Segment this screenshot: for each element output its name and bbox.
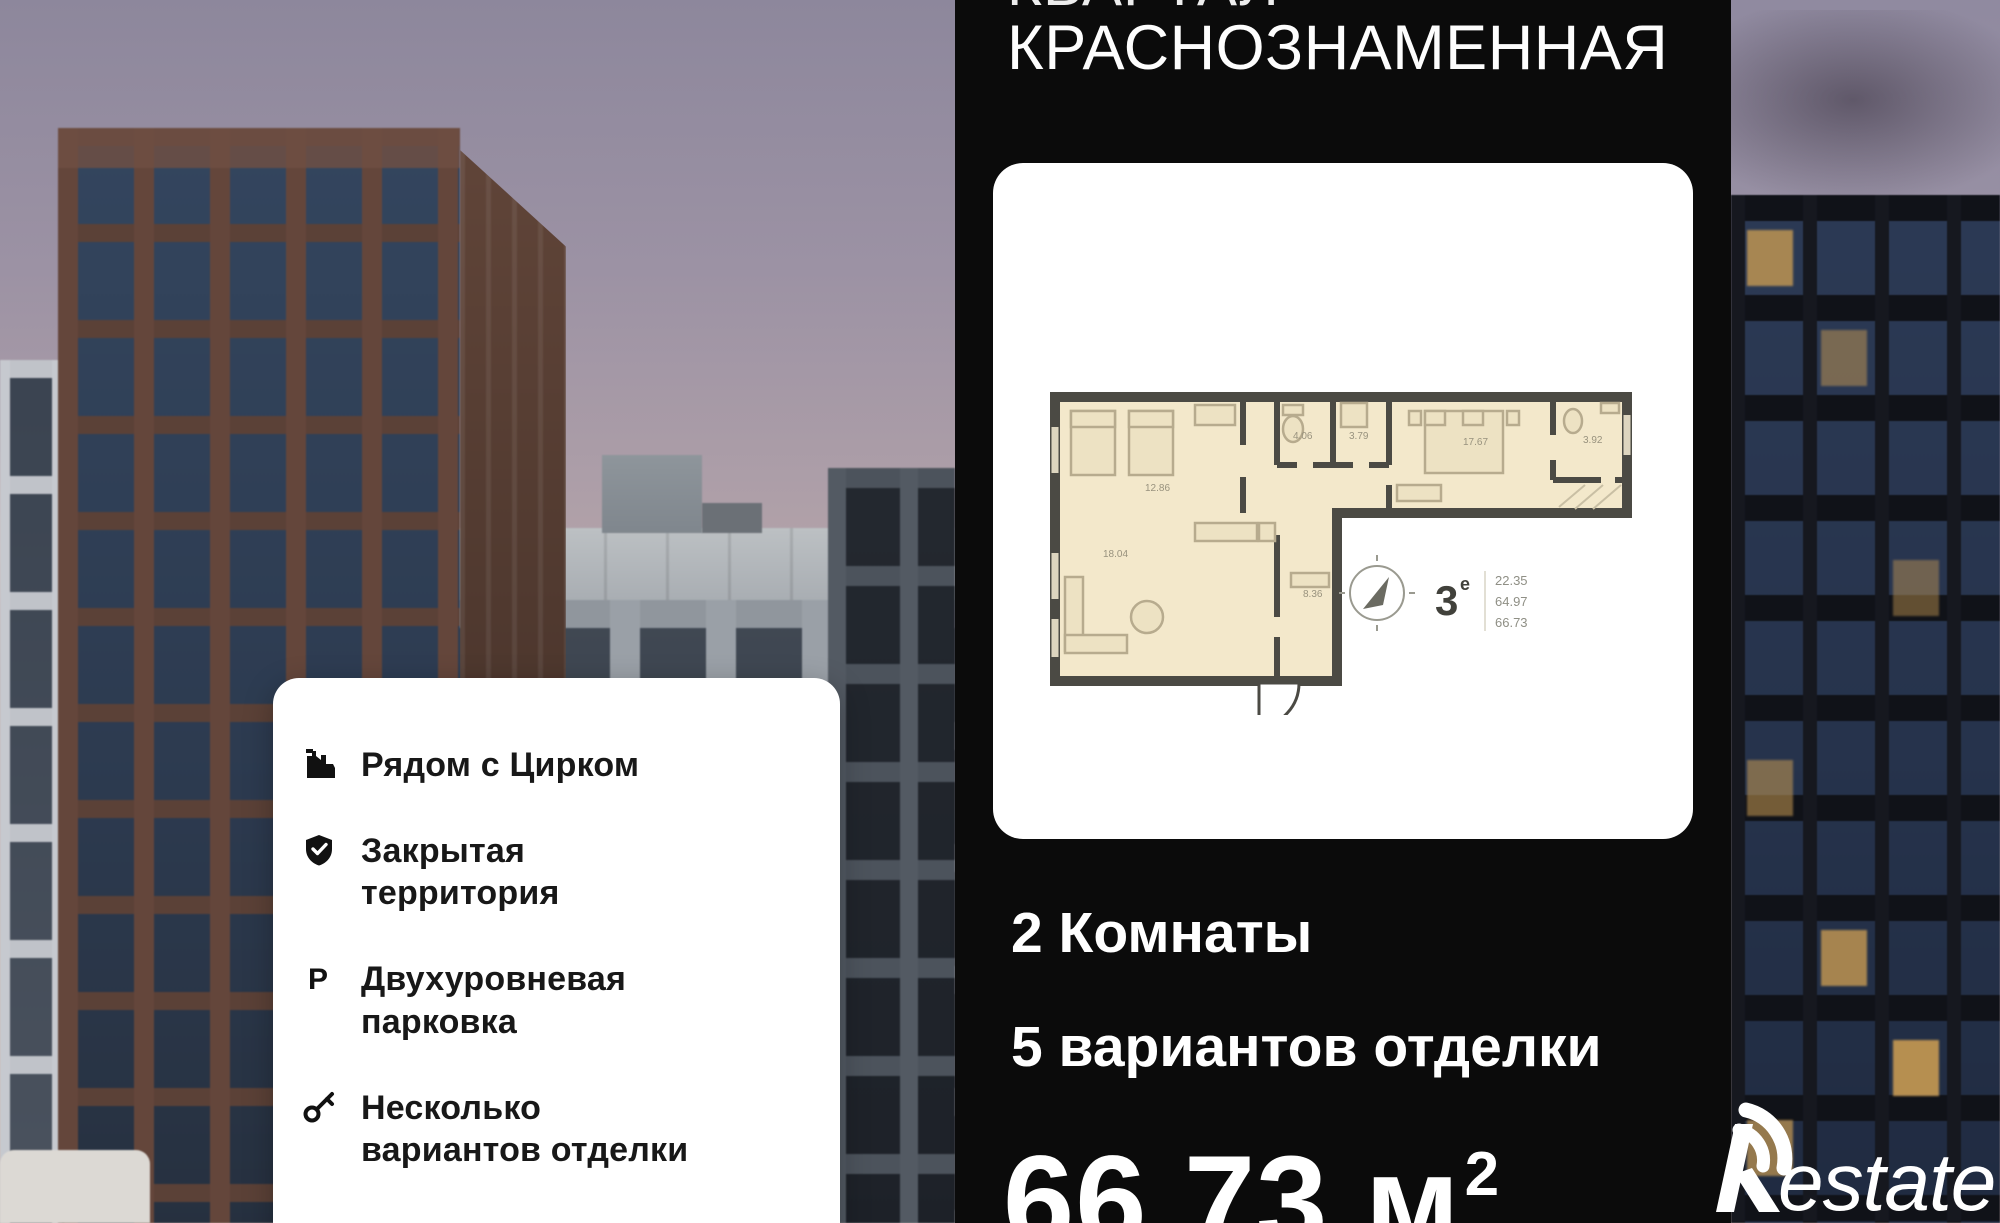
lit-window [1893, 1040, 1939, 1096]
floorplan-drawing: 3 е 22.35 64.97 66.73 12.86 4.06 3.79 17… [1045, 385, 1645, 715]
feature-item-parking: P Двухуровневая парковка [301, 958, 810, 1042]
feature-label: Двухуровневая парковка [361, 958, 691, 1042]
building-low-white [0, 1150, 150, 1223]
rooftop-box [602, 455, 702, 533]
lit-window [1747, 760, 1793, 816]
svg-text:3.79: 3.79 [1349, 431, 1369, 442]
svg-text:12.86: 12.86 [1145, 483, 1170, 494]
restate-logo: estate [1690, 1092, 2000, 1223]
area-value: 66.73 м2 [1003, 1128, 1496, 1223]
feature-label: Несколько вариантов отделки [361, 1087, 691, 1171]
real-estate-ad: Рядом с Цирком Закрытая территория P Дву… [0, 0, 2000, 1223]
restate-logo-graphic: estate [1690, 1092, 2000, 1223]
plan-stat-3: 66.73 [1495, 615, 1528, 630]
svg-text:8.36: 8.36 [1303, 589, 1323, 600]
lit-window [1821, 330, 1867, 386]
feature-label: Рядом с Цирком [361, 744, 691, 786]
svg-text:4.06: 4.06 [1293, 431, 1313, 442]
feature-item-finish-options: Несколько вариантов отделки [301, 1087, 810, 1171]
plan-type-suffix: е [1460, 574, 1470, 594]
background-photo-right [1731, 0, 2000, 1223]
rooms-count: 2 Комнаты [1011, 900, 1312, 966]
restate-r-mark [1716, 1110, 1785, 1212]
feature-item-circus: Рядом с Цирком [301, 744, 810, 786]
finish-options: 5 вариантов отделки [1011, 1014, 1602, 1080]
info-panel: КВАРТАЛ КРАСНОЗНАМЕННАЯ [955, 0, 1731, 1223]
lit-window [1821, 930, 1867, 986]
building-far-left [0, 360, 64, 1223]
svg-text:17.67: 17.67 [1463, 437, 1488, 448]
plan-stat-2: 64.97 [1495, 594, 1528, 609]
features-card: Рядом с Цирком Закрытая территория P Дву… [273, 678, 840, 1223]
shield-check-icon [301, 830, 361, 868]
rooftop-box-small [702, 503, 762, 533]
plan-type-number: 3 [1435, 577, 1458, 624]
feature-label: Закрытая территория [361, 830, 691, 914]
key-icon [301, 1087, 361, 1125]
compass-icon [1339, 555, 1415, 631]
svg-text:3.92: 3.92 [1583, 435, 1603, 446]
lit-window [1747, 230, 1793, 286]
svg-text:18.04: 18.04 [1103, 549, 1128, 560]
lit-window [1893, 560, 1939, 616]
feature-item-closed-territory: Закрытая территория [301, 830, 810, 914]
complex-title: КРАСНОЗНАМЕННАЯ [1007, 12, 1668, 84]
floorplan-card: 3 е 22.35 64.97 66.73 12.86 4.06 3.79 17… [993, 163, 1693, 839]
parking-icon: P [301, 958, 361, 996]
building-gray-right [828, 468, 955, 1223]
entry-door-arc [1259, 683, 1299, 715]
svg-text:P: P [308, 963, 328, 996]
cloud-decoration [1731, 10, 2000, 210]
circus-building-icon [301, 744, 361, 782]
area-exponent: 2 [1465, 1140, 1500, 1209]
restate-logo-text: estate [1778, 1137, 1995, 1223]
plan-stat-1: 22.35 [1495, 573, 1528, 588]
